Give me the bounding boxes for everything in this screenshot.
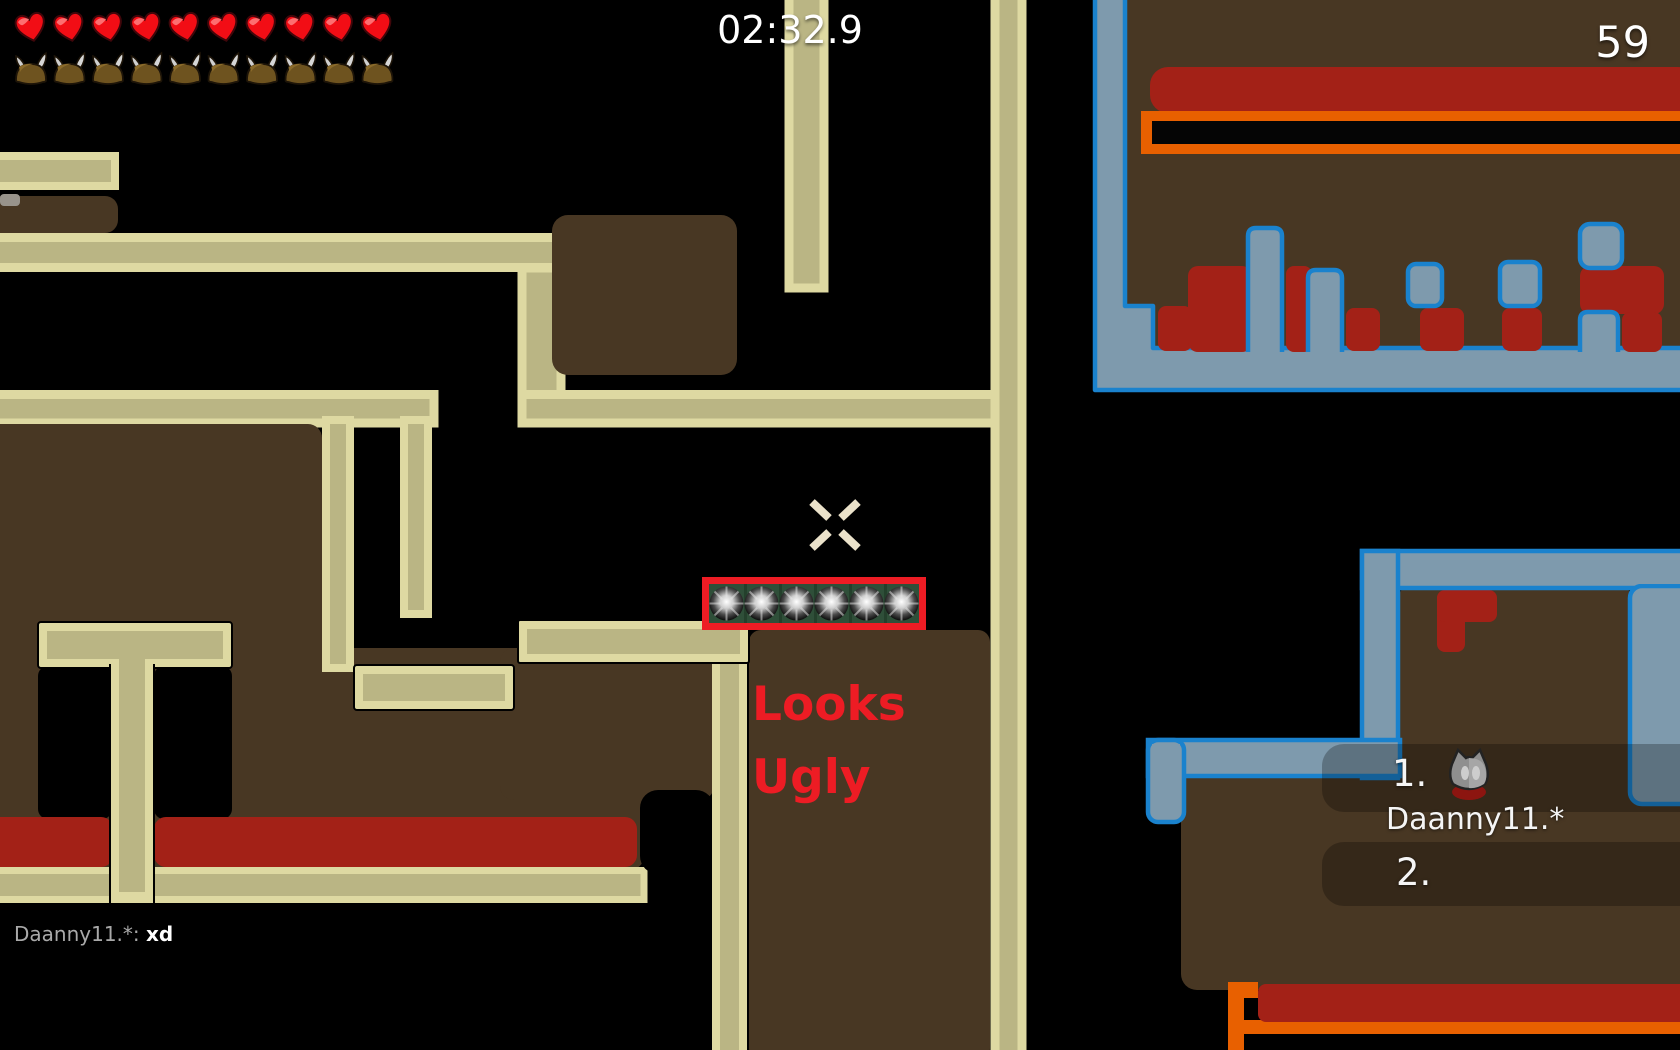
map-text-label: LooksUgly — [752, 668, 906, 814]
pit-left — [38, 666, 112, 819]
heart-icon — [130, 12, 163, 44]
floating-brown-box — [552, 215, 737, 375]
khaki-wall — [716, 650, 743, 1050]
player-avatar-cat-icon — [1444, 746, 1494, 800]
red-block — [1622, 312, 1662, 352]
floor-notch — [640, 790, 714, 874]
pit-right — [154, 666, 232, 819]
upper-platform — [0, 238, 565, 268]
stopper-row — [706, 581, 923, 627]
stopper-ball — [885, 587, 919, 621]
leaderboard-slot-2 — [1322, 842, 1680, 906]
hanging-leg-long — [326, 420, 350, 668]
hanging-leg-short — [404, 420, 428, 614]
stopper-ball — [780, 587, 814, 621]
khaki-floor — [0, 871, 644, 900]
stopper-ball — [815, 587, 849, 621]
heart-icon — [91, 12, 124, 44]
x-marker — [812, 502, 858, 548]
map-text-line1: Looks — [752, 677, 906, 732]
stopper-ball — [710, 587, 744, 621]
mid-platform-fill — [527, 629, 740, 654]
heart-icon — [53, 12, 86, 44]
armor-helmet-icon — [286, 53, 316, 84]
armor-helmet-icon — [93, 53, 123, 84]
orange-border-horiz — [1244, 1020, 1680, 1034]
stopper-ball — [850, 587, 884, 621]
armor-helmet-icon — [209, 53, 239, 84]
left-band — [0, 395, 434, 424]
stopper-ball — [745, 587, 779, 621]
orange-box-interior — [1152, 121, 1680, 144]
health-hearts-row — [13, 9, 433, 49]
chat-author: Daanny11.* — [14, 922, 133, 946]
map-text-line2: Ugly — [752, 750, 871, 805]
leaderboard-rank-1: 1. — [1392, 752, 1427, 795]
armor-helmet-icon — [132, 53, 162, 84]
danger-bar-mid — [154, 817, 637, 867]
heart-icon — [14, 12, 47, 44]
leaderboard-rank-2: 2. — [1396, 851, 1431, 894]
mid-band — [522, 395, 1002, 424]
gray-debris — [0, 194, 20, 206]
heart-icon — [168, 12, 201, 44]
hollow-bar — [0, 156, 115, 186]
score-counter: 59 — [1560, 18, 1650, 68]
danger-bar-left — [0, 817, 113, 867]
orange-border-corner — [1228, 982, 1258, 998]
armor-helmet-icon — [16, 53, 46, 84]
armor-row — [13, 51, 433, 91]
t-platform-stem-fill — [119, 640, 145, 892]
heart-icon — [361, 12, 394, 44]
chat-separator: : — [133, 922, 146, 946]
armor-helmet-icon — [363, 53, 393, 84]
mid-ground — [500, 648, 714, 800]
armor-helmet-icon — [247, 53, 277, 84]
heart-icon — [322, 12, 355, 44]
heart-icon — [284, 12, 317, 44]
heart-icon — [245, 12, 278, 44]
chat-line: Daanny11.*: xd — [14, 922, 173, 946]
chat-message: xd — [146, 922, 173, 946]
armor-helmet-icon — [55, 53, 85, 84]
armor-helmet-icon — [170, 53, 200, 84]
step-platform-fill — [363, 674, 505, 701]
game-screen[interactable]: 02:32.9 59 LooksUgly Daanny11.*: xd 1. 2… — [0, 0, 1680, 1050]
race-timer: 02:32.9 — [700, 8, 880, 52]
red-bar-bottom-right — [1258, 984, 1680, 1022]
red-bar-top-right — [1150, 67, 1680, 113]
heart-icon — [207, 12, 240, 44]
tall-pole — [995, 0, 1022, 1050]
armor-helmet-icon — [324, 53, 354, 84]
red-block-l-horiz — [1437, 590, 1497, 622]
leaderboard-name-1: Daanny11.* — [1386, 802, 1564, 837]
